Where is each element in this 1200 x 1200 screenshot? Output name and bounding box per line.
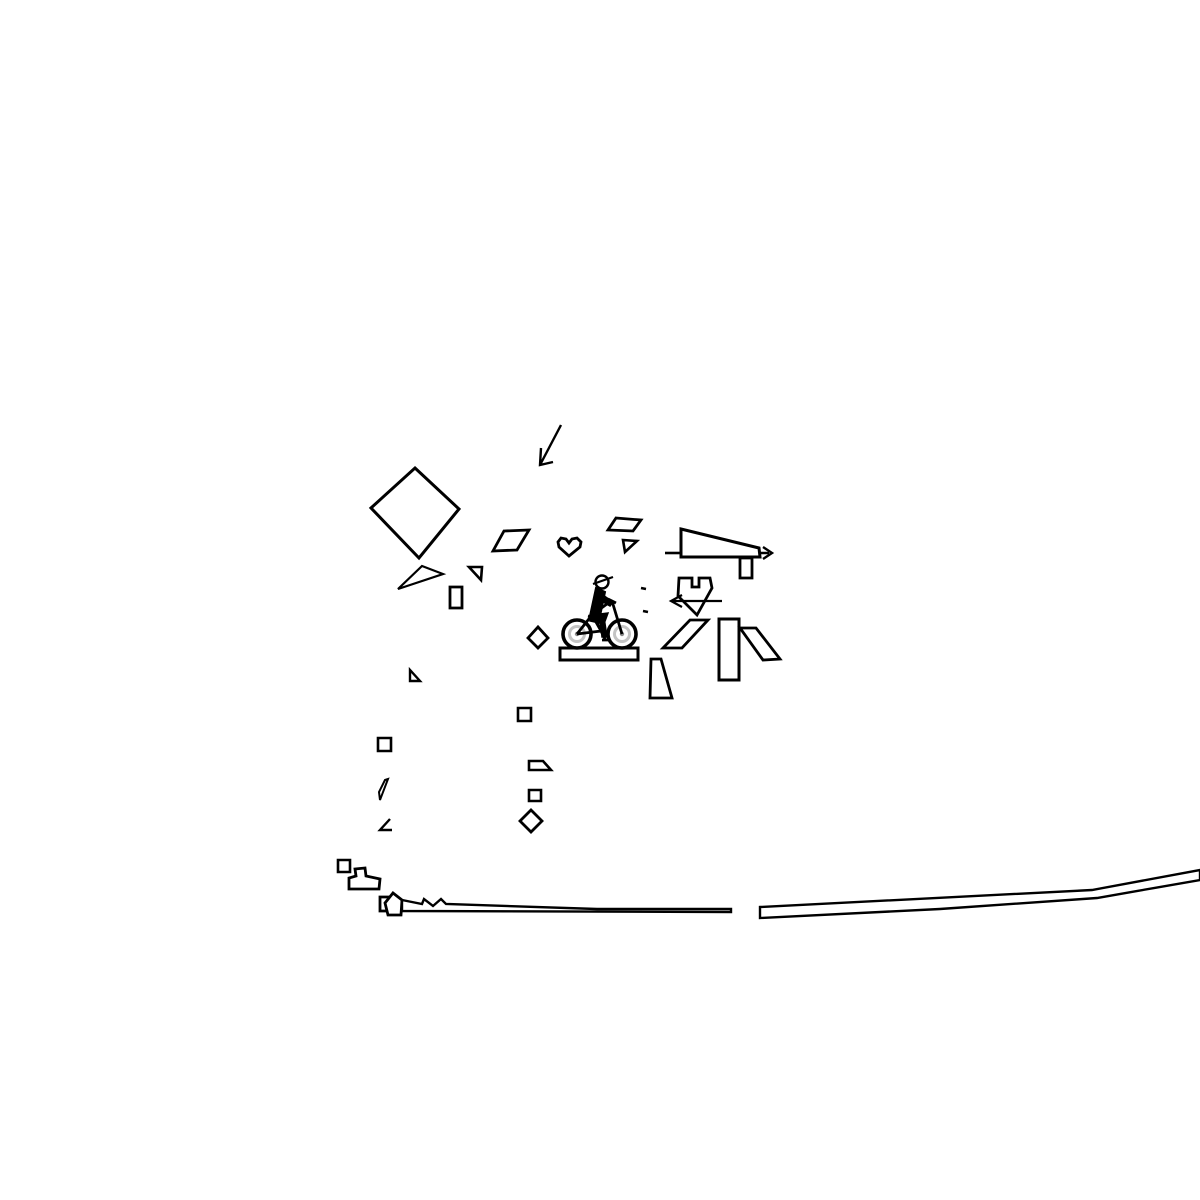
track-canvas[interactable] (0, 0, 1200, 1200)
angle-mark (380, 819, 392, 830)
game-viewport (0, 0, 1200, 1200)
gun-hanging-rect (740, 558, 752, 578)
slanted-parallelogram (740, 628, 780, 660)
small-vertical-rect (450, 587, 462, 608)
bike-platform (560, 648, 638, 660)
crown-arrow-left (671, 595, 722, 607)
heart-shape (558, 538, 581, 556)
boot-shape (349, 868, 380, 889)
tiny-square-3 (529, 790, 541, 801)
parallelogram-right (663, 620, 708, 648)
flag-triangle-upper (623, 540, 637, 552)
terrain-right (760, 870, 1200, 918)
tall-rect (719, 619, 739, 680)
gun-wedge-body (681, 529, 760, 557)
cursor-arrow-icon (540, 425, 561, 465)
small-diamond-lower (520, 810, 542, 832)
small-diamond-left (528, 627, 548, 648)
parallelogram-mid (493, 530, 529, 551)
tiny-triangle (410, 670, 420, 681)
triangle-wedge-left (398, 566, 443, 589)
thin-sliver (379, 779, 388, 800)
tiny-trapezoid (529, 761, 551, 770)
flag-triangle-small (469, 567, 482, 580)
tiny-square-1 (518, 708, 531, 721)
parallelogram-top (608, 518, 641, 531)
dash-mark-2 (643, 611, 648, 612)
tiny-square-2 (378, 738, 391, 751)
trapezoid-lower (650, 659, 672, 698)
big-diamond (371, 468, 459, 558)
tiny-square-4 (338, 860, 350, 872)
terrain-left (402, 899, 731, 912)
crown-shield (678, 578, 712, 615)
dash-mark-1 (641, 588, 646, 589)
